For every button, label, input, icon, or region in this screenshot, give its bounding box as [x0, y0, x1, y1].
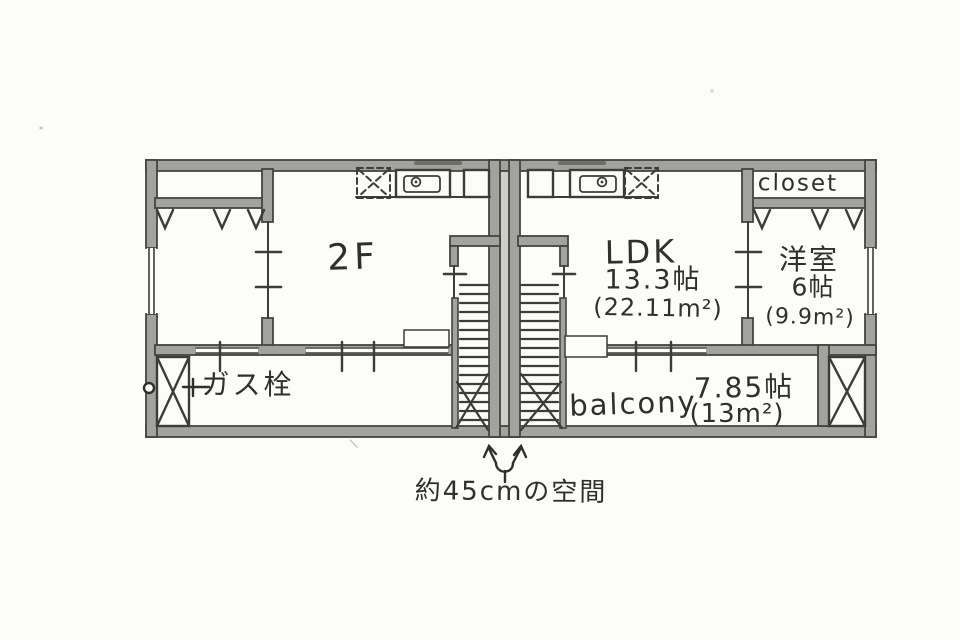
gap-note: 約45cmの空間 [415, 478, 608, 506]
left-unit [144, 168, 500, 430]
right-unit-kitchen [528, 168, 658, 198]
step-box-left [404, 330, 449, 347]
western-room-name: 洋室 [779, 246, 839, 274]
staircase-left [452, 285, 488, 430]
unit-gap-shade [500, 171, 509, 426]
counter-box [528, 170, 553, 197]
floor-label: 2F [327, 239, 380, 277]
ldk-room-area: (22.11m²) [593, 295, 723, 321]
floor-plan-page: 2F LDK 13.3帖 (22.11m²) 洋室 6帖 (9.9m²) clo… [0, 0, 960, 640]
western-room-size: 6帖 [792, 275, 835, 300]
counter-box [464, 170, 489, 197]
staircase-right [521, 285, 566, 430]
gas-tap-label: ガス栓 [201, 371, 294, 399]
ldk-room-size: 13.3帖 [604, 267, 701, 294]
balcony-label: balcony [569, 387, 697, 420]
balcony-area: (13m²) [689, 401, 784, 427]
kitchen-sink-symbol [396, 170, 450, 197]
closet-hanger-marks-right [754, 210, 862, 228]
closet-hanger-marks-left [157, 210, 264, 228]
left-unit-kitchen [356, 168, 490, 198]
crossed-box-symbol-left [157, 357, 189, 426]
kitchen-sink-symbol [570, 170, 624, 197]
crossed-box-symbol-right [829, 357, 865, 426]
western-room-area: (9.9m²) [765, 306, 855, 330]
crossed-box-symbol-dashed [625, 168, 658, 198]
closet-label: closet [758, 172, 838, 196]
crossed-box-symbol-dashed [357, 168, 390, 198]
step-box-right [565, 336, 607, 357]
